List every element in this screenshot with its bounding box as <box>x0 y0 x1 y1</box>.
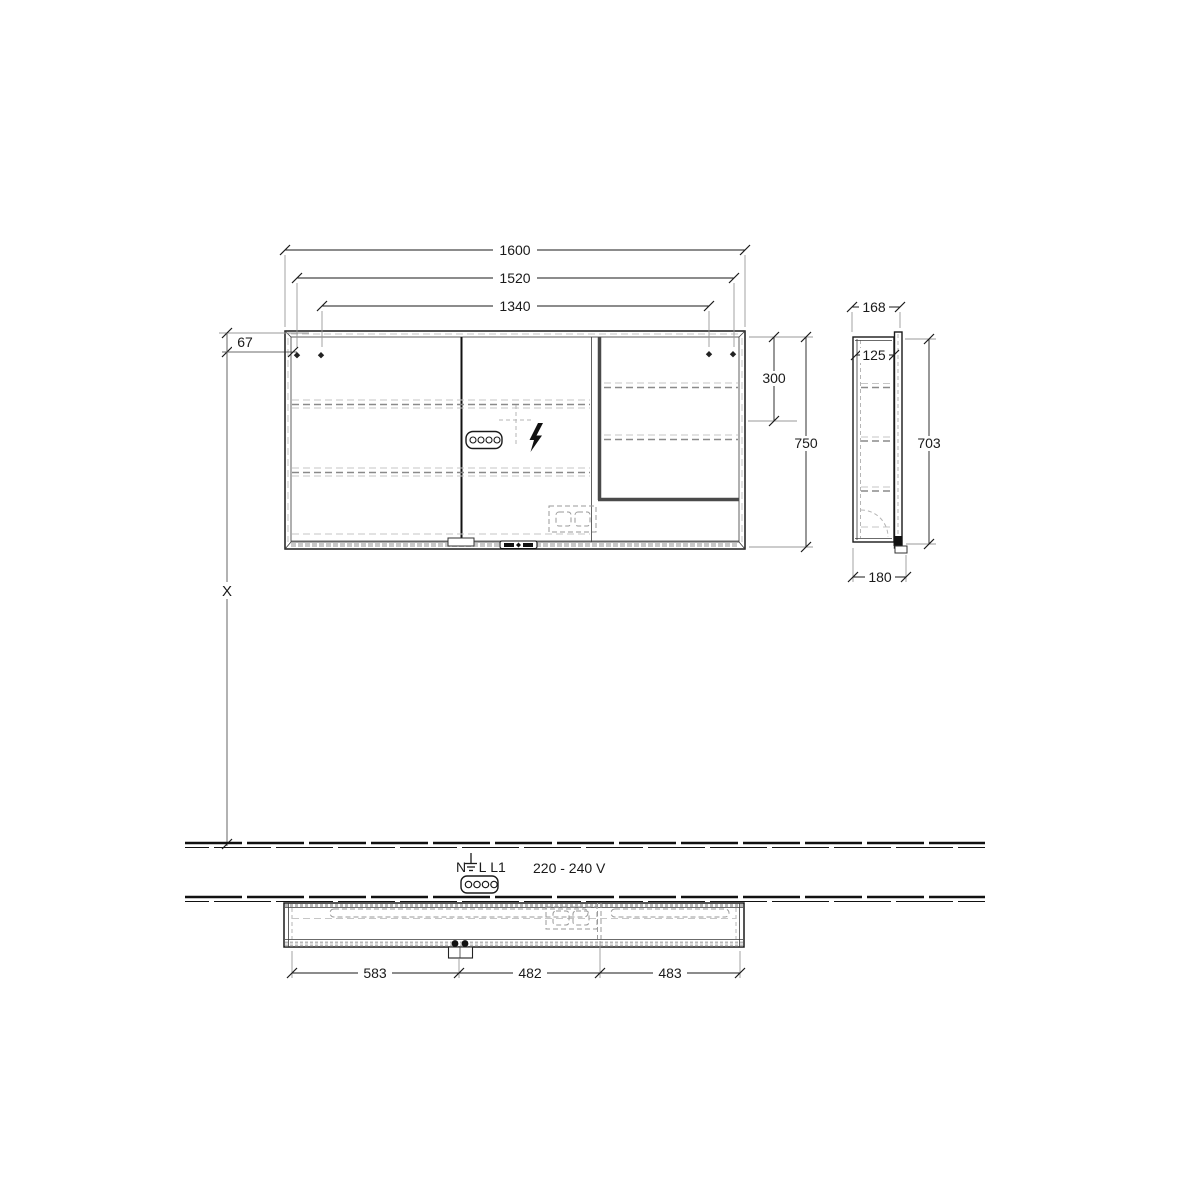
ground-icon <box>465 853 477 871</box>
technical-drawing-mirror-cabinet: 1600 1520 1340 67 X <box>0 0 1200 1200</box>
side-view: 168 125 703 180 <box>847 299 946 585</box>
dimension-door-height: 703 <box>905 334 946 549</box>
shelf-lines-left <box>292 400 590 534</box>
dim-plan-mid-label: 482 <box>518 965 542 981</box>
dim-depth-label: 168 <box>862 299 886 315</box>
dim-total-width-label: 1600 <box>499 242 530 258</box>
dimension-depth: 168 <box>847 299 905 332</box>
shelf-lines-right <box>604 383 738 440</box>
dim-door-height-label: 703 <box>917 435 941 451</box>
front-view <box>285 331 745 549</box>
center-cross-icon <box>499 405 533 447</box>
dim-hole-span-inner-label: 1340 <box>499 298 530 314</box>
plan-outline <box>284 903 744 947</box>
dim-plan-left-label: 583 <box>363 965 387 981</box>
dimension-mount-ref: X <box>218 333 236 849</box>
light-switch-icon <box>500 541 537 549</box>
side-body <box>853 337 894 542</box>
dim-hole-span-outer-label: 1520 <box>499 270 530 286</box>
wall-hatch-lower <box>185 897 985 902</box>
socket-unit-dashed <box>549 506 596 532</box>
dim-right-section-height-label: 300 <box>762 370 786 386</box>
dimension-hole-top-offset: 67 <box>219 328 309 357</box>
voltage-label: 220 - 240 V <box>533 860 606 876</box>
terminal-l-label: L <box>479 859 487 875</box>
dimension-hole-span-inner: 1340 <box>317 298 714 347</box>
terminal-n-label: N <box>456 859 466 875</box>
hinge-detail <box>448 538 474 546</box>
dim-mount-ref-label: X <box>222 583 232 600</box>
drawing-canvas: 1600 1520 1340 67 X <box>0 0 1200 1200</box>
side-light-housing <box>895 546 907 553</box>
socket-icon <box>466 432 502 449</box>
dim-height-label: 750 <box>794 435 818 451</box>
plan-view: 583 482 483 <box>284 903 745 981</box>
dim-depth-bottom-label: 180 <box>868 569 892 585</box>
dimension-depth-bottom: 180 <box>848 548 911 585</box>
dimension-height: 750 <box>789 332 823 552</box>
terminal-l1-label: L1 <box>490 859 506 875</box>
wall-hatch-upper <box>185 843 985 848</box>
connector-icon <box>461 876 498 893</box>
dim-plan-right-label: 483 <box>658 965 682 981</box>
side-light-icon <box>894 536 903 546</box>
dim-hole-top-offset-label: 67 <box>237 334 253 350</box>
lightning-icon <box>530 423 544 452</box>
dim-inner-depth-label: 125 <box>862 347 886 363</box>
mounting-hole-icons <box>294 351 736 358</box>
electrical-info: N L L1 220 - 240 V <box>456 853 606 893</box>
